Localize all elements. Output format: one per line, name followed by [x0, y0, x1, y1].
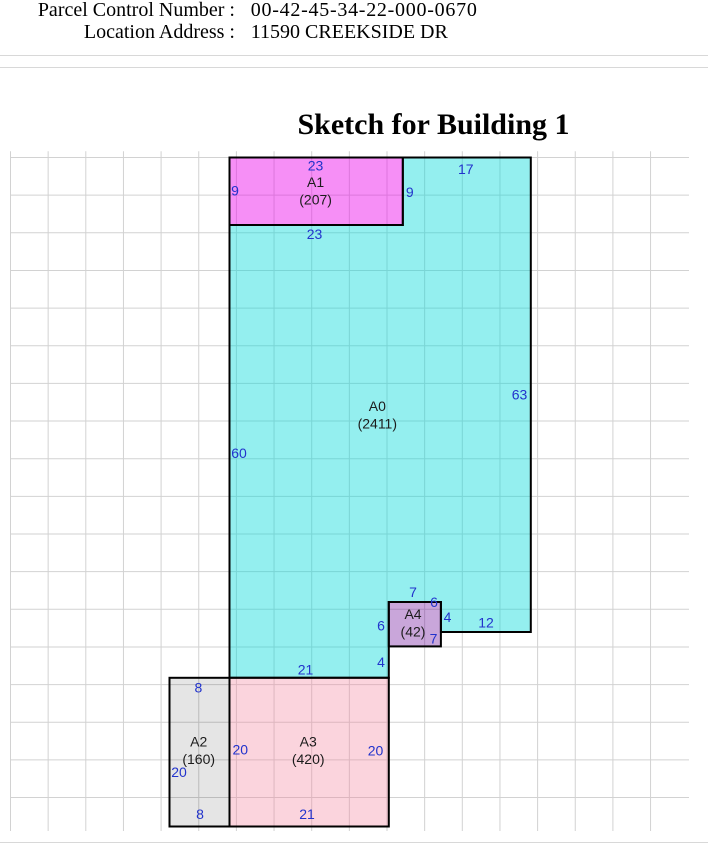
- svg-text:9: 9: [406, 184, 414, 200]
- svg-text:23: 23: [308, 158, 324, 174]
- svg-text:63: 63: [512, 387, 528, 403]
- svg-text:A3: A3: [300, 733, 317, 749]
- svg-text:4: 4: [377, 654, 385, 670]
- svg-text:A0: A0: [369, 398, 386, 414]
- svg-text:7: 7: [430, 631, 438, 647]
- svg-text:23: 23: [307, 226, 323, 242]
- svg-text:(207): (207): [299, 191, 332, 207]
- svg-text:A2: A2: [190, 733, 207, 749]
- svg-text:21: 21: [298, 662, 314, 678]
- svg-text:7: 7: [409, 584, 417, 600]
- svg-text:(2411): (2411): [358, 416, 397, 432]
- svg-text:20: 20: [368, 743, 384, 759]
- svg-text:6: 6: [430, 594, 438, 610]
- svg-text:(42): (42): [401, 623, 426, 639]
- svg-text:A4: A4: [404, 606, 421, 622]
- svg-text:20: 20: [233, 742, 249, 758]
- svg-text:60: 60: [231, 445, 247, 461]
- svg-text:4: 4: [444, 609, 452, 625]
- svg-text:A1: A1: [307, 174, 324, 190]
- svg-text:(160): (160): [182, 751, 215, 767]
- svg-text:12: 12: [478, 615, 494, 631]
- svg-text:6: 6: [377, 618, 385, 634]
- svg-text:8: 8: [195, 680, 203, 696]
- svg-text:(420): (420): [292, 751, 325, 767]
- svg-text:21: 21: [299, 806, 315, 822]
- svg-text:9: 9: [231, 183, 239, 199]
- svg-text:17: 17: [458, 161, 474, 177]
- svg-text:8: 8: [196, 806, 204, 822]
